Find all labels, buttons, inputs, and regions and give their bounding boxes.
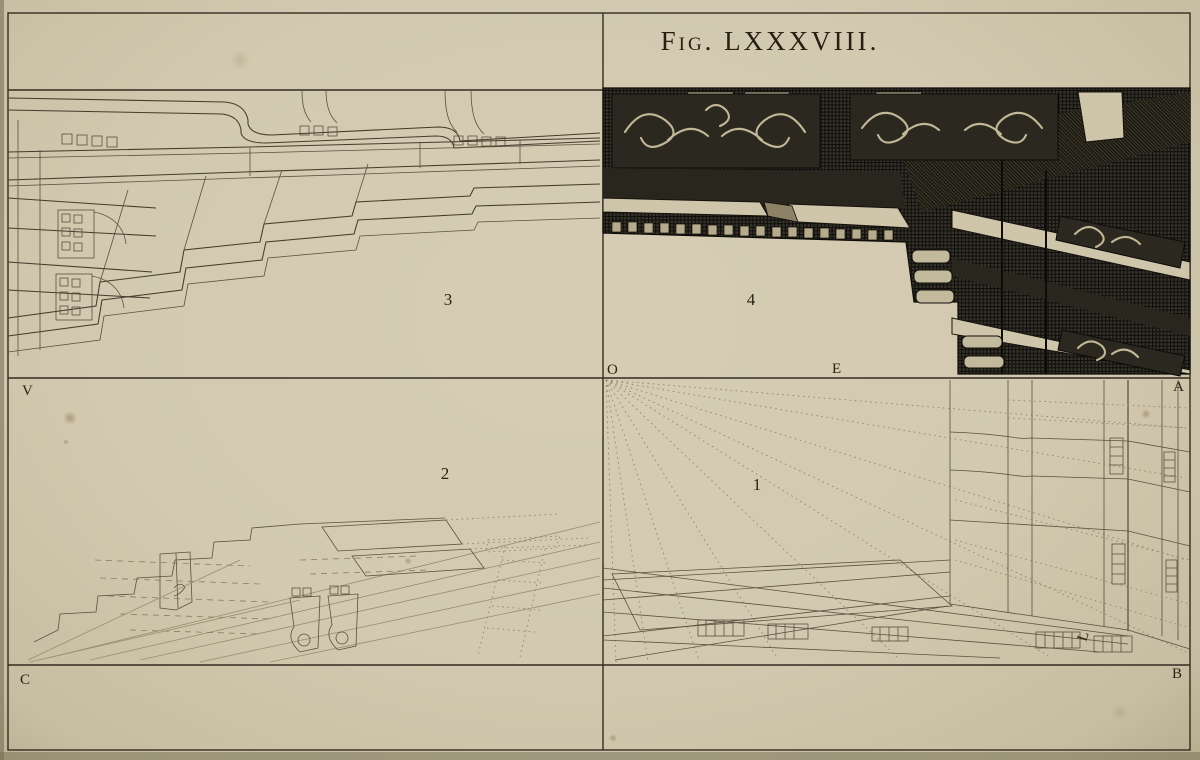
vanishing-rays (606, 380, 1186, 662)
figure-1-label: 1 (753, 475, 762, 494)
engraved-plate-page: Fig. LXXXVIII. 3 4 2 1 V O E A C B L (0, 0, 1200, 760)
engraving-canvas: Fig. LXXXVIII. 3 4 2 1 V O E A C B L (0, 0, 1200, 760)
hatched-floor-marks (95, 556, 430, 634)
photo-edge-bottom (0, 752, 1200, 760)
point-label-e: E (832, 361, 841, 377)
figure-1-perspective-construction (603, 380, 1190, 662)
figure-3-outline-ceiling (8, 90, 600, 356)
figure-4-label: 4 (747, 290, 756, 309)
point-label-c: C (20, 672, 30, 688)
figure-2-label: 2 (441, 464, 450, 483)
point-label-o: O (607, 362, 618, 378)
point-label-l: L (1075, 630, 1093, 644)
figure-2-outline-construction (28, 514, 600, 662)
plate-title: Fig. LXXXVIII. (661, 26, 880, 56)
point-label-b: B (1172, 666, 1182, 682)
photo-edge-left (0, 0, 4, 760)
wall-dentil-ladders (1110, 438, 1177, 592)
figure-3-label: 3 (444, 290, 453, 309)
right-wall-outline (950, 380, 1190, 649)
point-label-v: V (22, 383, 33, 399)
point-label-a: A (1173, 379, 1184, 395)
floor-grid (603, 560, 1132, 660)
figure-4-shaded-ceiling (603, 88, 1190, 376)
